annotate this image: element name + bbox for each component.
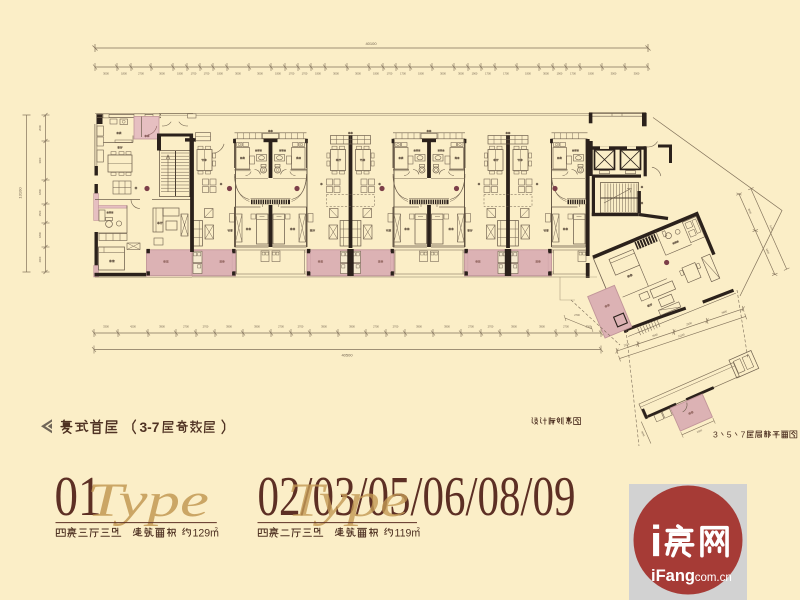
svg-text:3900: 3900 [539, 325, 545, 329]
svg-text:3-7: 3-7 [140, 420, 160, 435]
svg-text:3000: 3000 [333, 72, 339, 76]
svg-text:2700: 2700 [563, 325, 569, 329]
svg-text:7: 7 [741, 430, 746, 440]
svg-text:5: 5 [727, 430, 732, 440]
svg-text:3000: 3000 [543, 72, 549, 76]
svg-text:1800: 1800 [38, 232, 42, 238]
svg-text:3900: 3900 [159, 325, 165, 329]
svg-text:2700: 2700 [203, 325, 209, 329]
svg-text:1800: 1800 [121, 72, 127, 76]
svg-text:1700: 1700 [289, 72, 295, 76]
svg-text:i: i [650, 517, 662, 566]
svg-text:3900: 3900 [321, 325, 327, 329]
svg-text:1700: 1700 [570, 72, 576, 76]
svg-text:3000: 3000 [634, 72, 640, 76]
svg-text:3000: 3000 [257, 72, 263, 76]
svg-text:3000: 3000 [235, 72, 241, 76]
svg-text:3900: 3900 [444, 325, 450, 329]
svg-text:2700: 2700 [468, 325, 474, 329]
svg-text:iFang: iFang [651, 567, 695, 585]
svg-text:3: 3 [713, 430, 718, 440]
svg-text:1700: 1700 [387, 72, 393, 76]
svg-text:1900: 1900 [418, 72, 424, 76]
svg-text:1800: 1800 [38, 189, 42, 195]
svg-text:1700: 1700 [204, 72, 210, 76]
svg-text:3900: 3900 [511, 325, 517, 329]
svg-text:4200: 4200 [130, 325, 136, 329]
svg-text:Type: Type [87, 474, 209, 527]
svg-text:2000: 2000 [38, 256, 42, 262]
svg-text:1900: 1900 [315, 72, 321, 76]
svg-text:2700: 2700 [138, 72, 144, 76]
svg-text:3000: 3000 [355, 72, 361, 76]
svg-text:3900: 3900 [416, 325, 422, 329]
svg-text:1900: 1900 [472, 72, 478, 76]
svg-text:3900: 3900 [349, 325, 355, 329]
svg-text:1900: 1900 [588, 72, 594, 76]
svg-text:3000: 3000 [458, 72, 464, 76]
svg-text:.com.cn: .com.cn [692, 572, 732, 584]
svg-text:1900: 1900 [525, 72, 531, 76]
svg-text:3000: 3000 [611, 72, 617, 76]
svg-text:2000: 2000 [38, 125, 42, 131]
svg-text:3000: 3000 [440, 72, 446, 76]
svg-text:2700: 2700 [298, 325, 304, 329]
svg-text:1900: 1900 [217, 72, 223, 76]
svg-text:2700: 2700 [574, 314, 580, 317]
svg-text:1500: 1500 [38, 210, 42, 216]
svg-text:1900: 1900 [373, 72, 379, 76]
svg-text:2700: 2700 [488, 325, 494, 329]
svg-text:3900: 3900 [254, 325, 260, 329]
svg-text:2700: 2700 [278, 325, 284, 329]
svg-text:1900: 1900 [557, 72, 563, 76]
svg-text:1900: 1900 [177, 72, 183, 76]
svg-text:40500: 40500 [341, 353, 353, 358]
svg-text:2700: 2700 [183, 325, 189, 329]
svg-text:3000: 3000 [103, 72, 109, 76]
svg-text:1900: 1900 [275, 72, 281, 76]
svg-text:1700: 1700 [191, 72, 197, 76]
svg-text:Type: Type [287, 474, 409, 527]
svg-text:1700: 1700 [400, 72, 406, 76]
svg-text:1700: 1700 [485, 72, 491, 76]
svg-text:40100: 40100 [365, 41, 377, 46]
svg-text:3900: 3900 [226, 325, 232, 329]
svg-text:1700: 1700 [503, 72, 509, 76]
svg-text:2700: 2700 [373, 325, 379, 329]
svg-text:3000: 3000 [38, 157, 42, 163]
svg-text:13100: 13100 [18, 187, 23, 199]
svg-text:2700: 2700 [393, 325, 399, 329]
svg-text:3000: 3000 [159, 72, 165, 76]
svg-text:3300: 3300 [103, 325, 109, 329]
svg-text:1700: 1700 [302, 72, 308, 76]
